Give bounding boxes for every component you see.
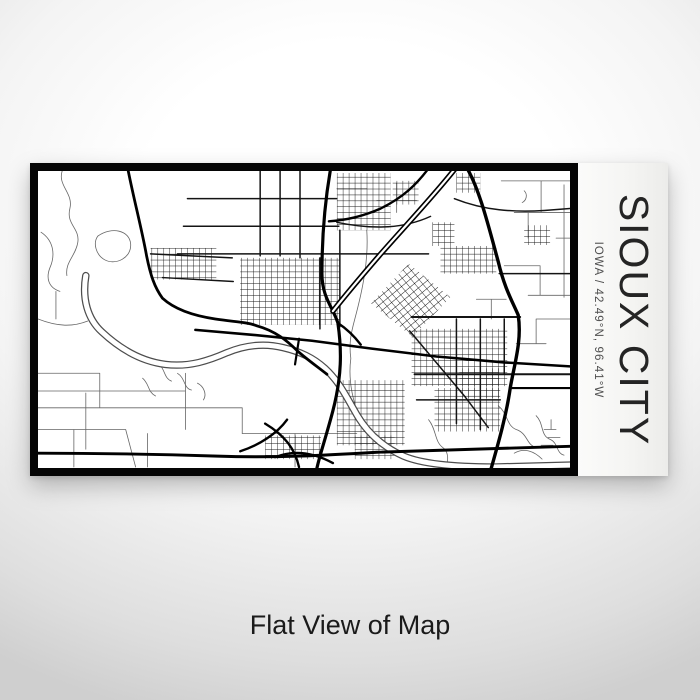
label-panel: SIOUX CITY IOWA / 42.49°N, 96.41°W bbox=[578, 163, 668, 476]
label-rotated-block: SIOUX CITY IOWA / 42.49°N, 96.41°W bbox=[592, 170, 654, 470]
map-frame bbox=[30, 163, 578, 476]
map-title: SIOUX CITY bbox=[613, 170, 654, 470]
city-map-graphic bbox=[38, 171, 570, 468]
view-caption: Flat View of Map bbox=[0, 610, 700, 641]
map-product-card: SIOUX CITY IOWA / 42.49°N, 96.41°W bbox=[30, 163, 668, 476]
product-mockup-page: { "product": { "title": "SIOUX CITY", "s… bbox=[0, 0, 700, 700]
map-coordinates: IOWA / 42.49°N, 96.41°W bbox=[592, 170, 604, 470]
